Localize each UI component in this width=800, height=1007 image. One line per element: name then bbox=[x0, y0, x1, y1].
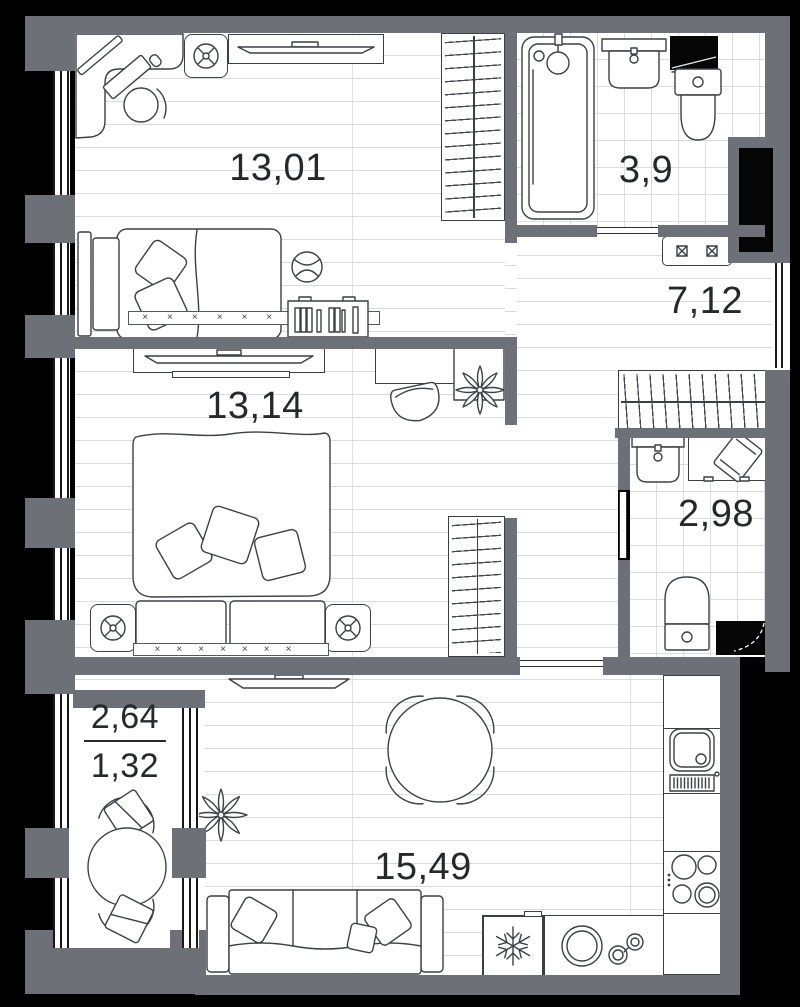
room-label-bedroom-top: 13,01 bbox=[208, 149, 348, 187]
wardrobe-rail bbox=[621, 401, 767, 403]
floor-corridor bbox=[505, 372, 618, 675]
wall-balcony-bottom bbox=[68, 948, 172, 994]
bathroom-sink-small bbox=[631, 436, 685, 486]
bed-double bbox=[128, 423, 333, 655]
wall-bathroom-top-a bbox=[517, 225, 597, 237]
lamp-icon bbox=[90, 604, 136, 652]
snowflake-icon bbox=[482, 915, 544, 977]
wardrobe-bedroom-middle bbox=[448, 516, 505, 657]
room-label-bathroom-small: 2,98 bbox=[646, 495, 786, 533]
door-threshold-bathroom-top bbox=[597, 227, 658, 234]
wall-bedroom-middle-right-a bbox=[505, 349, 517, 425]
plant-bedroom-middle bbox=[452, 344, 508, 420]
tv-icon-bedroom-top bbox=[228, 34, 384, 64]
bathroom-sink-top bbox=[601, 38, 667, 96]
window-bedroom-middle-1 bbox=[53, 358, 70, 498]
wardrobe-rail bbox=[477, 519, 479, 654]
wall-bedrooms-divider bbox=[75, 337, 517, 349]
counter-divider bbox=[664, 913, 720, 914]
entrance-door-leaf bbox=[775, 263, 777, 368]
wardrobe-hallway bbox=[618, 370, 770, 432]
wall-bathroom-small-left-b bbox=[618, 560, 630, 657]
window-balcony-left-2 bbox=[53, 878, 70, 948]
tv-shelf bbox=[172, 371, 290, 378]
wall-bathroom-small-left-a bbox=[618, 432, 630, 490]
window-bedroom-middle-2 bbox=[53, 548, 70, 620]
pier-left-5 bbox=[25, 620, 75, 694]
entrance-door-frame bbox=[781, 263, 783, 368]
bookshelf-books bbox=[287, 296, 369, 338]
electrical-panel-icons bbox=[662, 236, 732, 266]
kitchen-sink bbox=[663, 727, 721, 793]
laundry-basket bbox=[688, 435, 768, 481]
pier-left-2 bbox=[25, 195, 75, 243]
desk-chair-bedroom-middle bbox=[388, 382, 444, 424]
desk-bedroom-middle bbox=[375, 346, 463, 384]
desk-with-chair bbox=[75, 33, 187, 139]
dining-table bbox=[370, 680, 510, 820]
toilet-bathroom-top bbox=[674, 68, 722, 146]
wall-bedroom-top-right bbox=[505, 33, 517, 243]
kitchen-counter-column bbox=[663, 675, 721, 975]
counter-divider bbox=[664, 793, 720, 794]
dishes-icons bbox=[544, 915, 664, 977]
bathtub bbox=[521, 36, 595, 220]
wardrobe-rail bbox=[473, 36, 475, 218]
ball bbox=[289, 249, 325, 285]
balcony-area-coeff: 1,32 bbox=[73, 749, 177, 783]
window-balcony-kitchen-1 bbox=[182, 708, 199, 828]
lamp-icon bbox=[325, 604, 371, 652]
radiator-strip-bedroom-middle: ××××××× bbox=[133, 643, 329, 656]
sofa bbox=[206, 888, 444, 978]
wall-kitchen-top-a bbox=[75, 657, 520, 675]
floor-plan: ××××××××× bbox=[0, 0, 800, 1007]
tv-icon-bedroom-middle bbox=[133, 347, 325, 373]
pier-left-4 bbox=[25, 498, 75, 548]
wall-bathroom-top-b bbox=[658, 225, 765, 237]
shaft-curve bbox=[716, 621, 768, 655]
door-threshold-kitchen bbox=[520, 660, 603, 667]
balcony-chair-bottom bbox=[90, 892, 170, 954]
balcony-area-full: 2,64 bbox=[73, 700, 177, 734]
window-bedroom-top-1 bbox=[53, 71, 70, 195]
wall-top bbox=[70, 16, 790, 33]
window-balcony-left-1 bbox=[53, 694, 70, 828]
wall-bottom bbox=[195, 975, 740, 995]
door-threshold-bathroom-small bbox=[619, 492, 627, 558]
window-bedroom-top-2 bbox=[53, 243, 70, 315]
wall-wardrobe-bathroom-small bbox=[615, 428, 770, 438]
window-balcony-kitchen-2 bbox=[182, 878, 199, 948]
wall-right-top bbox=[765, 16, 790, 141]
toilet-bathroom-small bbox=[664, 576, 710, 657]
room-label-hallway: 7,12 bbox=[640, 282, 770, 320]
pier-balcony-left bbox=[25, 828, 69, 878]
pier-top-left bbox=[25, 16, 75, 71]
room-label-bedroom-middle: 13,14 bbox=[185, 387, 325, 425]
room-label-bathroom-top: 3,9 bbox=[586, 151, 706, 189]
wall-kitchen-right bbox=[720, 657, 740, 992]
tv-kitchen bbox=[227, 674, 352, 694]
wardrobe-bedroom-top bbox=[441, 33, 505, 221]
room-label-kitchen: 15,49 bbox=[358, 848, 488, 886]
floor-door-gap-bedroom-top bbox=[505, 243, 517, 337]
balcony-fraction-line bbox=[84, 740, 166, 742]
pier-balcony-mid-right bbox=[172, 828, 206, 878]
stove bbox=[663, 850, 721, 912]
wall-bedroom-middle-right-b bbox=[505, 518, 517, 657]
lamp-icon bbox=[184, 34, 228, 78]
pier-left-3 bbox=[25, 315, 75, 358]
